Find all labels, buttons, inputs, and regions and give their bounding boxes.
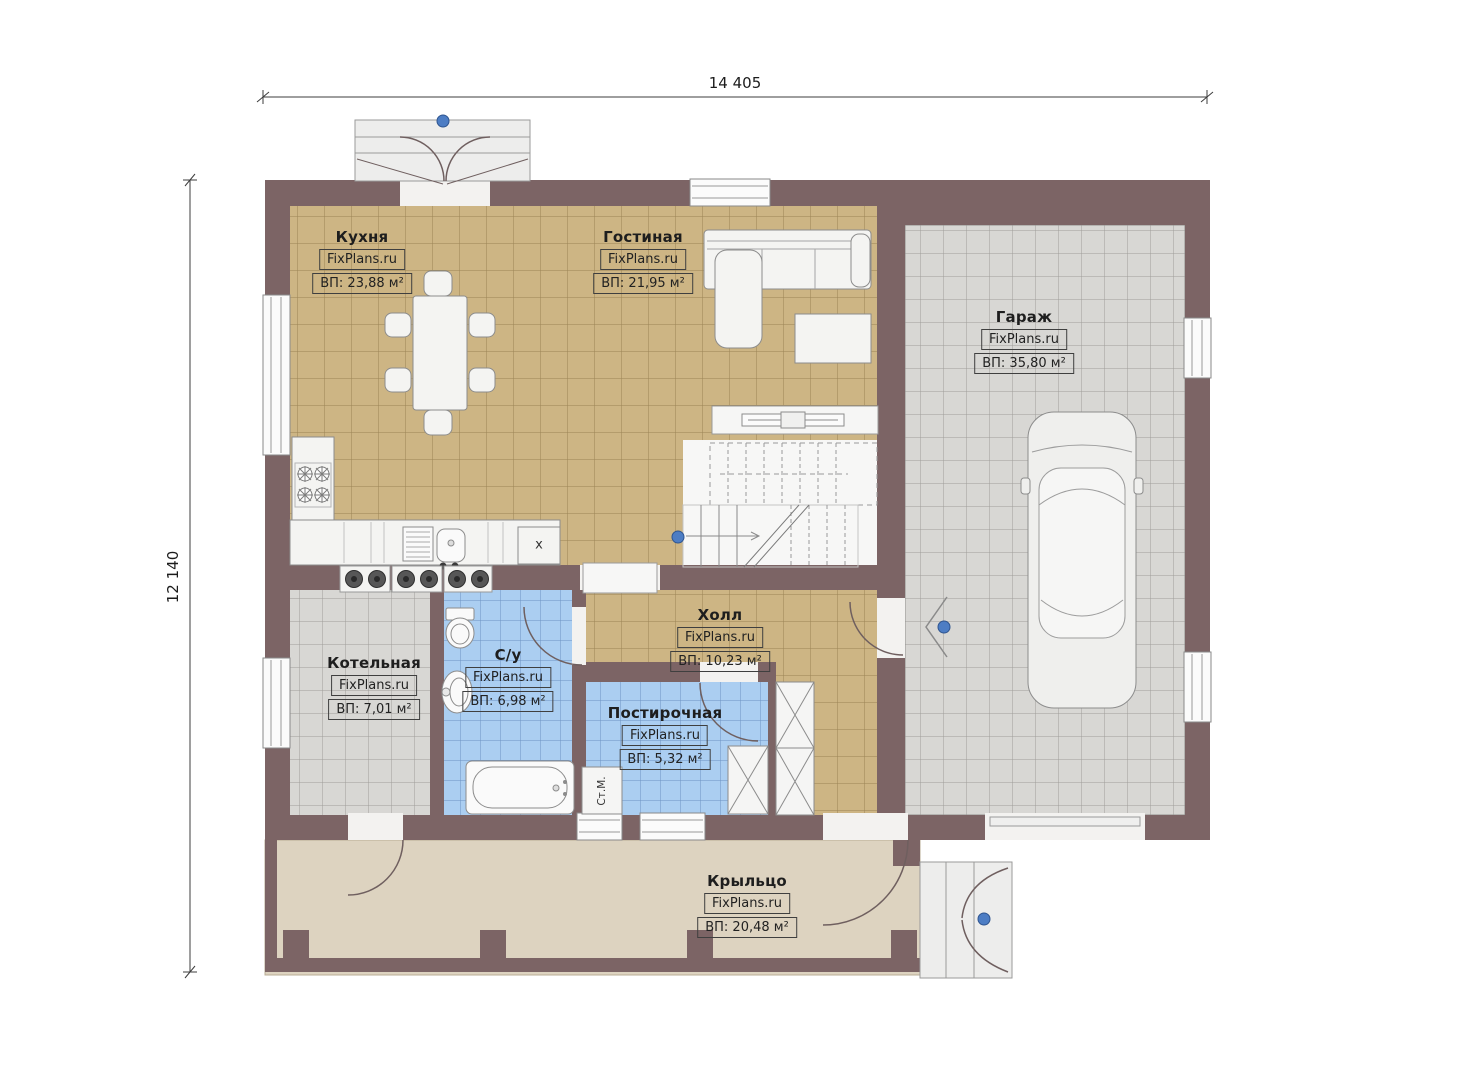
- area-box: ВП: 10,23 м²: [670, 651, 770, 672]
- car: [1021, 412, 1143, 708]
- room-name: Гостиная: [593, 228, 693, 246]
- entry-stoop: [355, 120, 530, 184]
- marker-dot: [978, 913, 990, 925]
- window: [263, 658, 290, 748]
- brand-box: FixPlans.ru: [981, 329, 1067, 350]
- cabinet-x-label: х: [535, 538, 543, 553]
- dimension-height: 12 140: [164, 551, 182, 604]
- room-name: Постирочная: [608, 704, 723, 722]
- room-name: Гараж: [974, 308, 1074, 326]
- washing-machine-label: Ст.М.: [596, 776, 608, 805]
- coffee-table: [795, 314, 871, 363]
- area-box: ВП: 35,80 м²: [974, 353, 1074, 374]
- brand-box: FixPlans.ru: [319, 249, 405, 270]
- brand-box: FixPlans.ru: [622, 725, 708, 746]
- porch-post: [283, 930, 309, 972]
- area-box: ВП: 5,32 м²: [619, 749, 710, 770]
- porch-post: [480, 930, 506, 972]
- porch-post: [891, 930, 917, 972]
- marker-dot: [672, 531, 684, 543]
- window: [640, 813, 705, 840]
- brand-box: FixPlans.ru: [331, 675, 417, 696]
- radiator-strip: [340, 566, 492, 592]
- area-box: ВП: 7,01 м²: [328, 699, 419, 720]
- garage-door-leaf: [990, 817, 1140, 826]
- room-label-garage: Гараж FixPlans.ru ВП: 35,80 м²: [974, 308, 1074, 374]
- marker-dot: [437, 115, 449, 127]
- brand-box: FixPlans.ru: [704, 893, 790, 914]
- room-label-hall: Холл FixPlans.ru ВП: 10,23 м²: [670, 606, 770, 672]
- room-name: С/у: [462, 646, 553, 664]
- brand-box: FixPlans.ru: [677, 627, 763, 648]
- window: [1184, 318, 1211, 378]
- window: [263, 295, 290, 455]
- tv-stand: [712, 406, 878, 434]
- room-name: Холл: [670, 606, 770, 624]
- room-label-living: Гостиная FixPlans.ru ВП: 21,95 м²: [593, 228, 693, 294]
- porch-steps: [920, 862, 1012, 978]
- floor-plan-canvas: 14 405 12 140 Кухня FixPlans.ru ВП: 23,8…: [0, 0, 1474, 1080]
- brand-box: FixPlans.ru: [600, 249, 686, 270]
- room-name: Кухня: [312, 228, 412, 246]
- area-box: ВП: 6,98 м²: [462, 691, 553, 712]
- window: [690, 179, 770, 206]
- room-label-bathroom: С/у FixPlans.ru ВП: 6,98 м²: [462, 646, 553, 712]
- room-label-laundry: Постирочная FixPlans.ru ВП: 5,32 м²: [608, 704, 723, 770]
- staircase-area: [683, 440, 877, 567]
- room-name: Крыльцо: [697, 872, 797, 890]
- area-box: ВП: 21,95 м²: [593, 273, 693, 294]
- area-box: ВП: 20,48 м²: [697, 917, 797, 938]
- porch-floor: [265, 840, 920, 975]
- room-label-porch: Крыльцо FixPlans.ru ВП: 20,48 м²: [697, 872, 797, 938]
- area-box: ВП: 23,88 м²: [312, 273, 412, 294]
- bathtub-icon: [466, 761, 574, 814]
- room-name: Котельная: [327, 654, 421, 672]
- room-label-boiler: Котельная FixPlans.ru ВП: 7,01 м²: [327, 654, 421, 720]
- window: [577, 813, 622, 840]
- hall-cabinet: [583, 563, 657, 593]
- brand-box: FixPlans.ru: [465, 667, 551, 688]
- window: [1184, 652, 1211, 722]
- marker-dot: [938, 621, 950, 633]
- room-label-kitchen: Кухня FixPlans.ru ВП: 23,88 м²: [312, 228, 412, 294]
- toilet-icon: [446, 608, 474, 648]
- dimension-width: 14 405: [709, 74, 762, 92]
